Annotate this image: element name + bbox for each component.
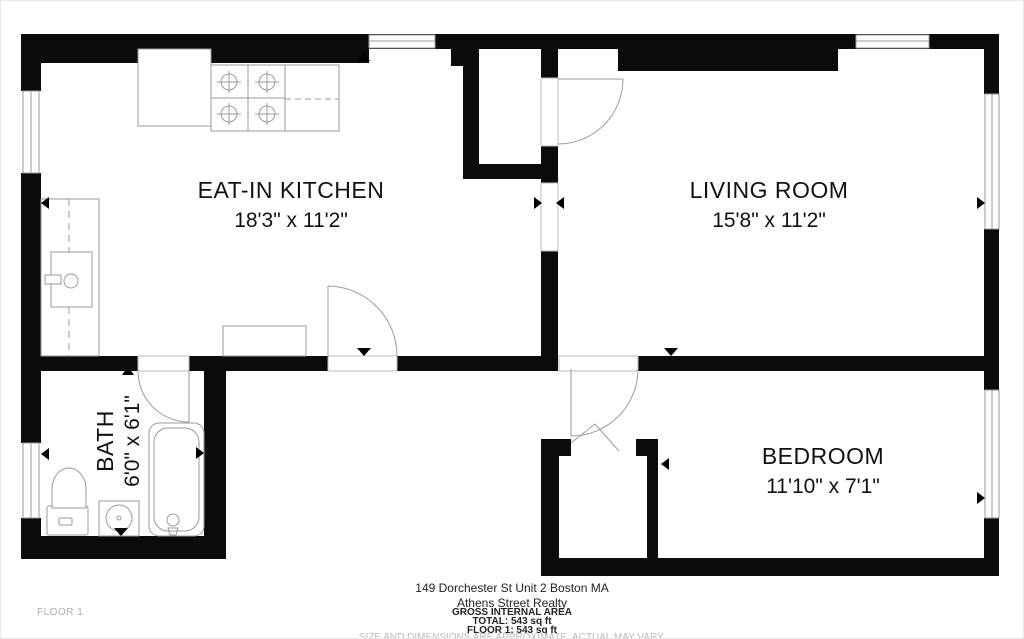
stove <box>211 65 285 131</box>
wall-segment <box>984 34 999 94</box>
wall-segment <box>21 49 41 91</box>
kitchen-living-opening <box>541 183 558 251</box>
window <box>856 35 929 48</box>
bath-door <box>138 356 189 422</box>
closet-wall <box>647 456 658 571</box>
room-label-bedroom: BEDROOM <box>762 443 884 469</box>
wall-segment <box>189 356 328 371</box>
wall-segment <box>203 49 369 63</box>
kitchen-lower-counter <box>223 326 306 356</box>
window <box>23 91 39 173</box>
floorplan-drawing: EAT-IN KITCHEN 18'3" x 11'2" LIVING ROOM… <box>1 1 1024 639</box>
faucet <box>45 275 61 284</box>
wall-segment <box>397 356 558 371</box>
room-dims-bath: 6'0" x 6'1" <box>121 395 144 487</box>
room-dims-living-room: 15'8" x 11'2" <box>712 209 826 232</box>
room-label-bath: BATH <box>92 410 118 472</box>
closet-bifold-door <box>571 424 619 451</box>
marker-arrow <box>664 348 678 356</box>
footer-address: 149 Dorchester St Unit 2 Boston MA <box>1 581 1023 595</box>
marker-arrow <box>977 492 985 504</box>
kitchen-counter <box>138 49 211 126</box>
footer-disclaimer: SIZE AND DIMENSIONS ARE APPROXIMATE, ACT… <box>1 632 1023 639</box>
wall-segment <box>21 173 41 356</box>
marker-arrow <box>977 197 985 209</box>
wall-bump <box>618 49 838 71</box>
window <box>985 94 999 229</box>
wall-segment <box>21 356 138 371</box>
wall-segment <box>638 356 984 371</box>
wall-segment <box>541 49 558 78</box>
marker-arrow <box>357 348 371 356</box>
bathtub <box>149 423 204 536</box>
marker-arrow <box>41 448 49 460</box>
wall-segment <box>21 34 999 49</box>
window <box>369 35 435 48</box>
wall-segment <box>541 456 559 576</box>
wall-segment <box>984 518 999 576</box>
room-dims-kitchen: 18'3" x 11'2" <box>234 209 348 232</box>
wall-segment <box>541 439 571 456</box>
wall-segment <box>541 558 999 576</box>
marker-arrow <box>661 458 669 470</box>
window <box>23 443 39 518</box>
closet-wall-stub <box>636 439 658 456</box>
wall-segment <box>984 229 999 390</box>
room-label-living-room: LIVING ROOM <box>690 177 849 203</box>
bedroom-door <box>559 356 638 451</box>
kitchen-counter-dishwasher <box>285 65 339 131</box>
bath-right-wall <box>204 371 226 536</box>
toilet <box>47 468 88 535</box>
kitchen-door <box>328 286 397 371</box>
room-dims-bedroom: 11'10" x 7'1" <box>766 475 880 498</box>
wall-segment <box>451 49 466 66</box>
stair-shaft-left-wall <box>463 49 479 164</box>
wall-segment <box>21 536 226 559</box>
floor-label: FLOOR 1 <box>37 607 83 618</box>
window <box>985 390 999 518</box>
room-label-kitchen: EAT-IN KITCHEN <box>198 177 385 203</box>
wall-segment <box>541 251 558 371</box>
entry-door <box>541 78 623 146</box>
stair-shaft-bottom-wall <box>463 164 558 179</box>
floorplan-page: EAT-IN KITCHEN 18'3" x 11'2" LIVING ROOM… <box>0 0 1024 639</box>
kitchen-sink-counter <box>41 199 99 356</box>
